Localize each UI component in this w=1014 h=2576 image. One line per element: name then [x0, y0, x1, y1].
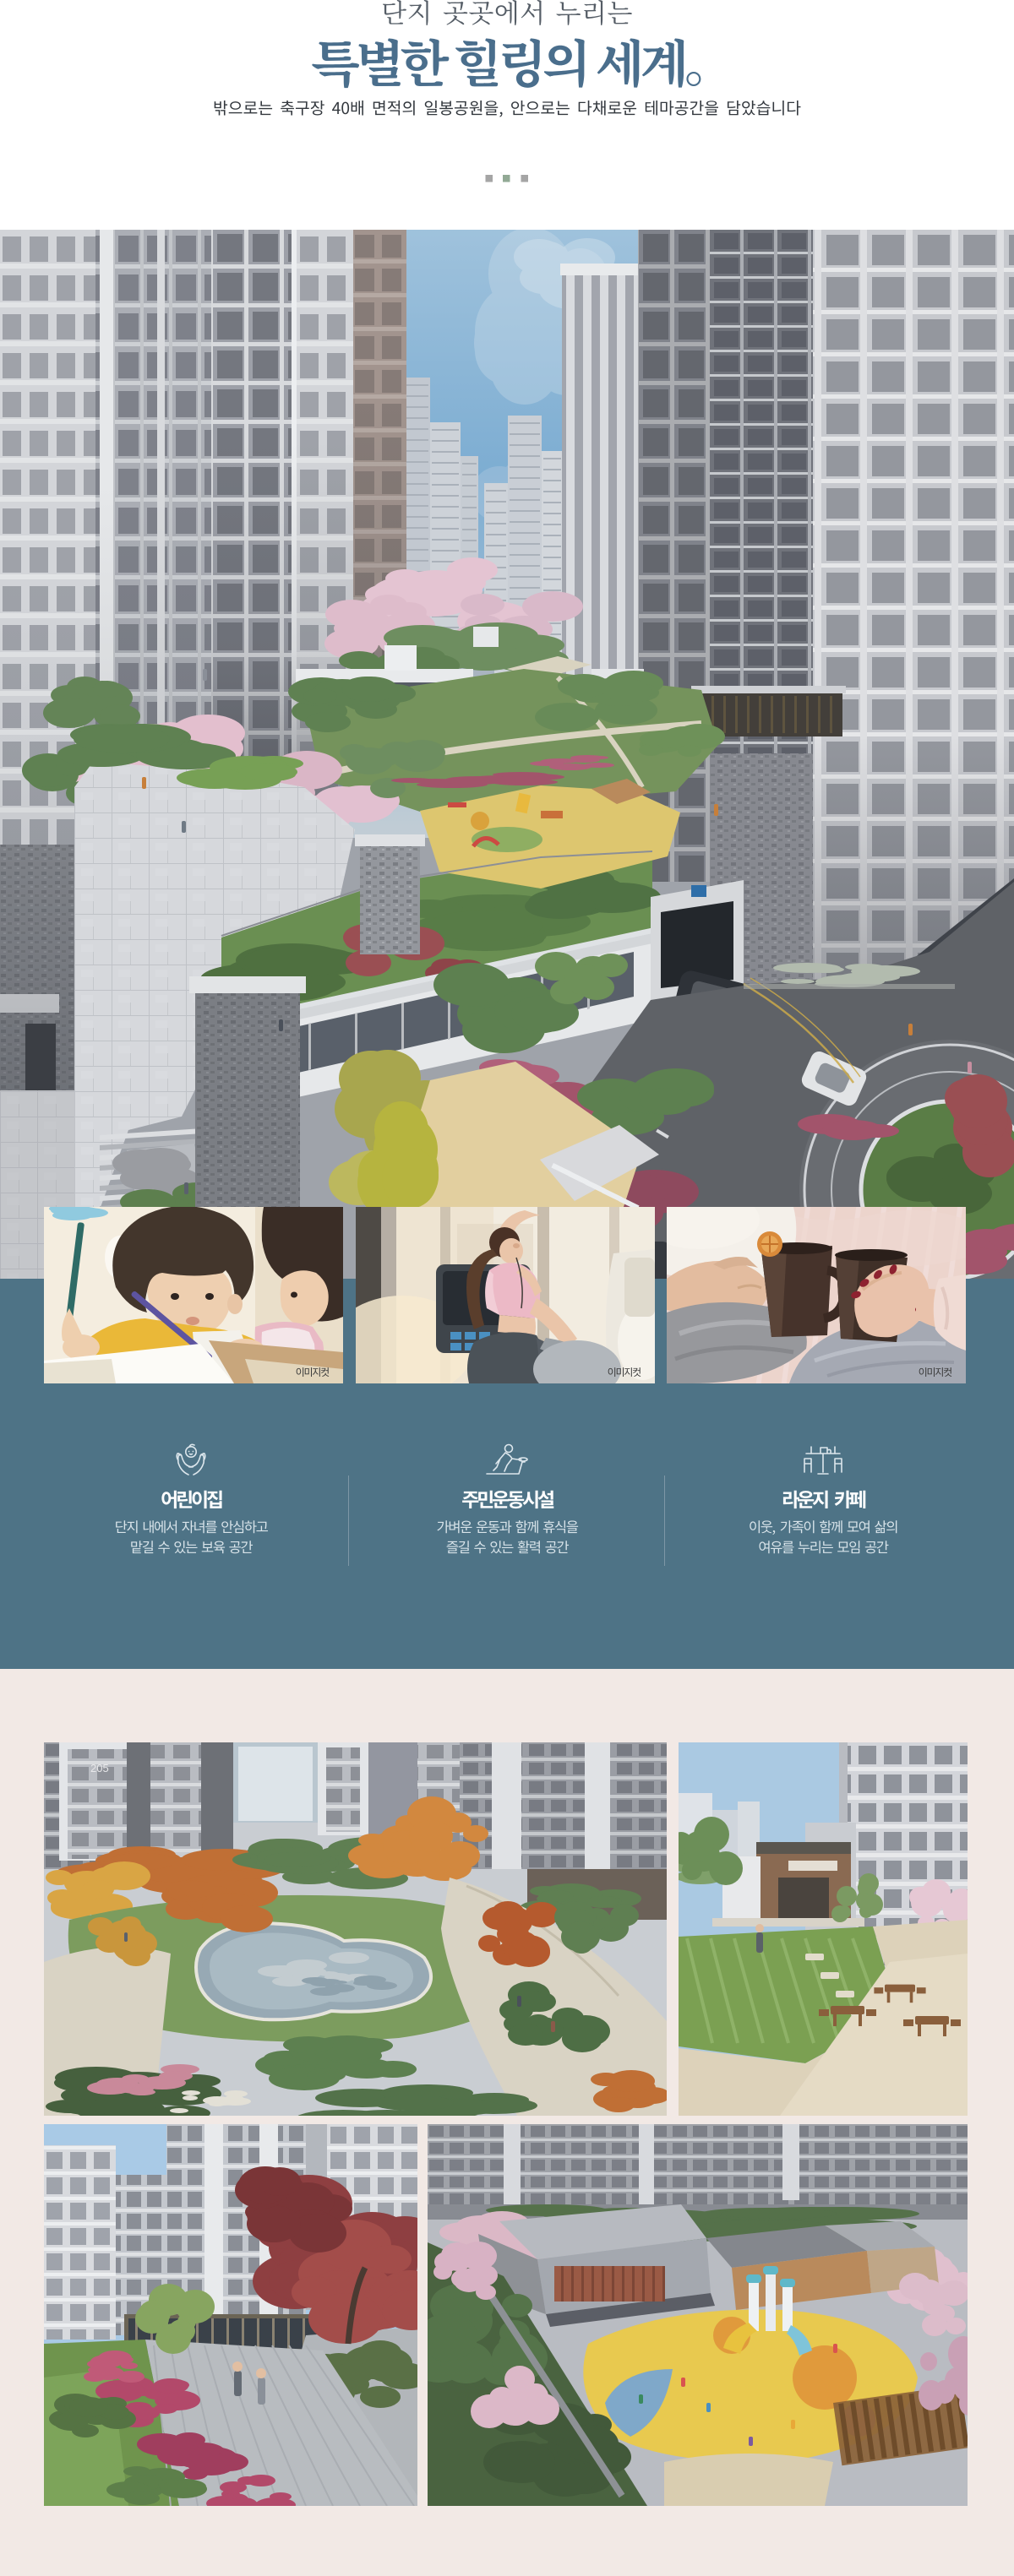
svg-text:205: 205 [90, 1762, 109, 1774]
